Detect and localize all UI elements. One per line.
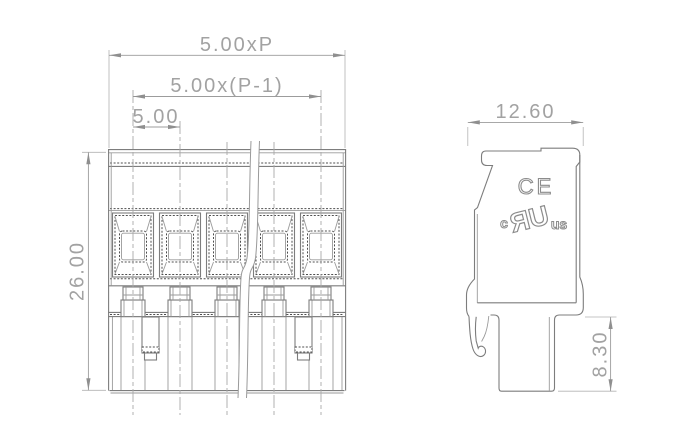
dimension-height: 26.00	[67, 152, 107, 390]
dimension-pin-length-label: 8.30	[590, 331, 612, 378]
terminal-block-drawing: CE c UR us 5.00xP 5.00x(P-1)	[0, 0, 680, 440]
ul-mark-c: c	[500, 215, 508, 231]
break-line	[238, 141, 260, 398]
dimension-span: 5.00x(P-1)	[133, 75, 321, 99]
ce-mark: CE	[518, 174, 555, 199]
latch-hook	[469, 316, 489, 357]
dimension-pitch: 5.00	[133, 106, 180, 129]
latch-slot-right	[295, 317, 312, 360]
ul-mark-logo: UR	[507, 200, 552, 239]
dimension-depth-label: 12.60	[495, 101, 555, 123]
dimension-total-width-label: 5.00xP	[200, 34, 274, 56]
ul-recognized-mark: c UR us	[500, 200, 567, 239]
dimension-height-label: 26.00	[67, 241, 89, 301]
side-view: CE c UR us	[467, 148, 584, 391]
dimension-pin-length: 8.30	[558, 317, 617, 391]
latch-slot-left	[142, 317, 159, 360]
dimension-depth: 12.60	[468, 101, 583, 146]
technical-drawing-canvas: CE c UR us 5.00xP 5.00x(P-1)	[0, 0, 680, 440]
pin-shaft	[491, 315, 560, 391]
dimension-span-label: 5.00x(P-1)	[170, 75, 283, 97]
terminal-centerlines	[133, 90, 321, 415]
ul-mark-us: us	[551, 216, 568, 232]
dimension-pitch-label: 5.00	[133, 106, 180, 128]
front-view	[108, 90, 346, 415]
